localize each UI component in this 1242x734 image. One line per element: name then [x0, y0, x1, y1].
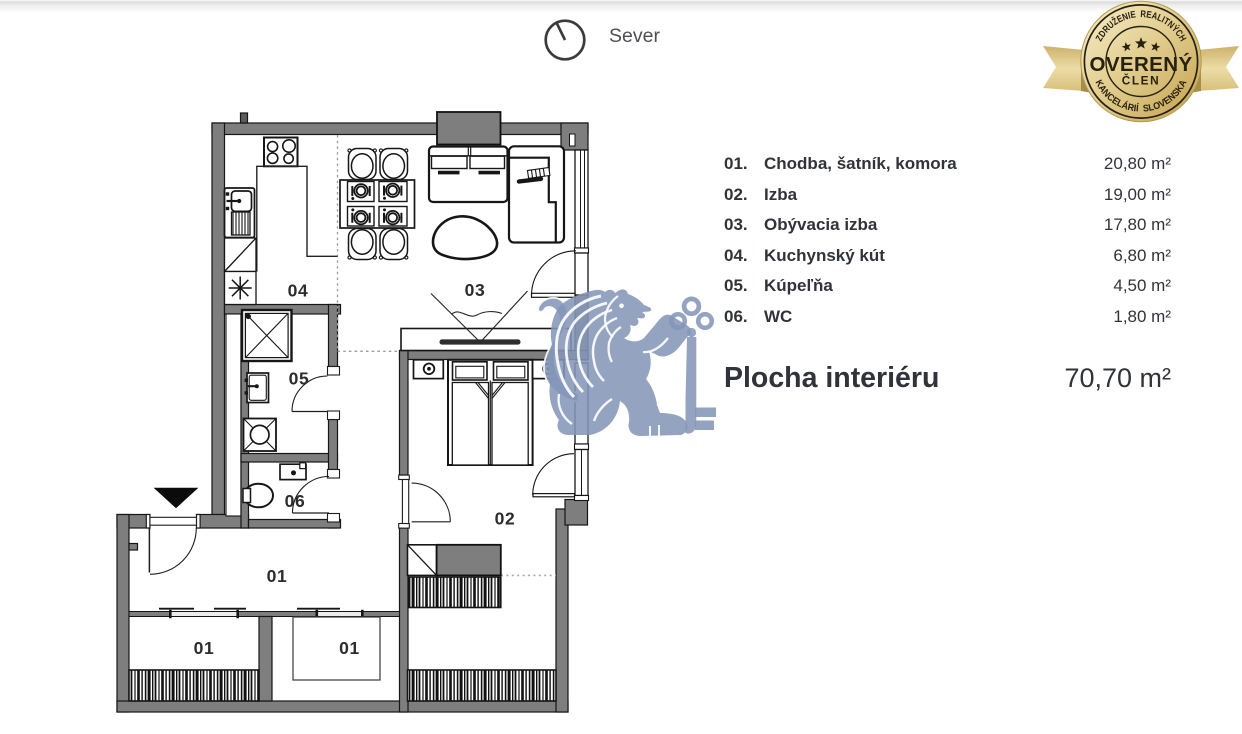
svg-text:04: 04: [288, 281, 309, 301]
svg-text:ČLEN: ČLEN: [1122, 74, 1161, 88]
svg-text:05: 05: [289, 369, 310, 389]
svg-text:03: 03: [465, 280, 486, 300]
svg-text:02: 02: [495, 509, 516, 529]
svg-text:06: 06: [285, 491, 306, 511]
svg-text:01: 01: [194, 638, 215, 658]
svg-text:OVERENÝ: OVERENÝ: [1089, 52, 1192, 76]
svg-text:01: 01: [339, 638, 360, 658]
svg-text:01: 01: [267, 566, 288, 586]
